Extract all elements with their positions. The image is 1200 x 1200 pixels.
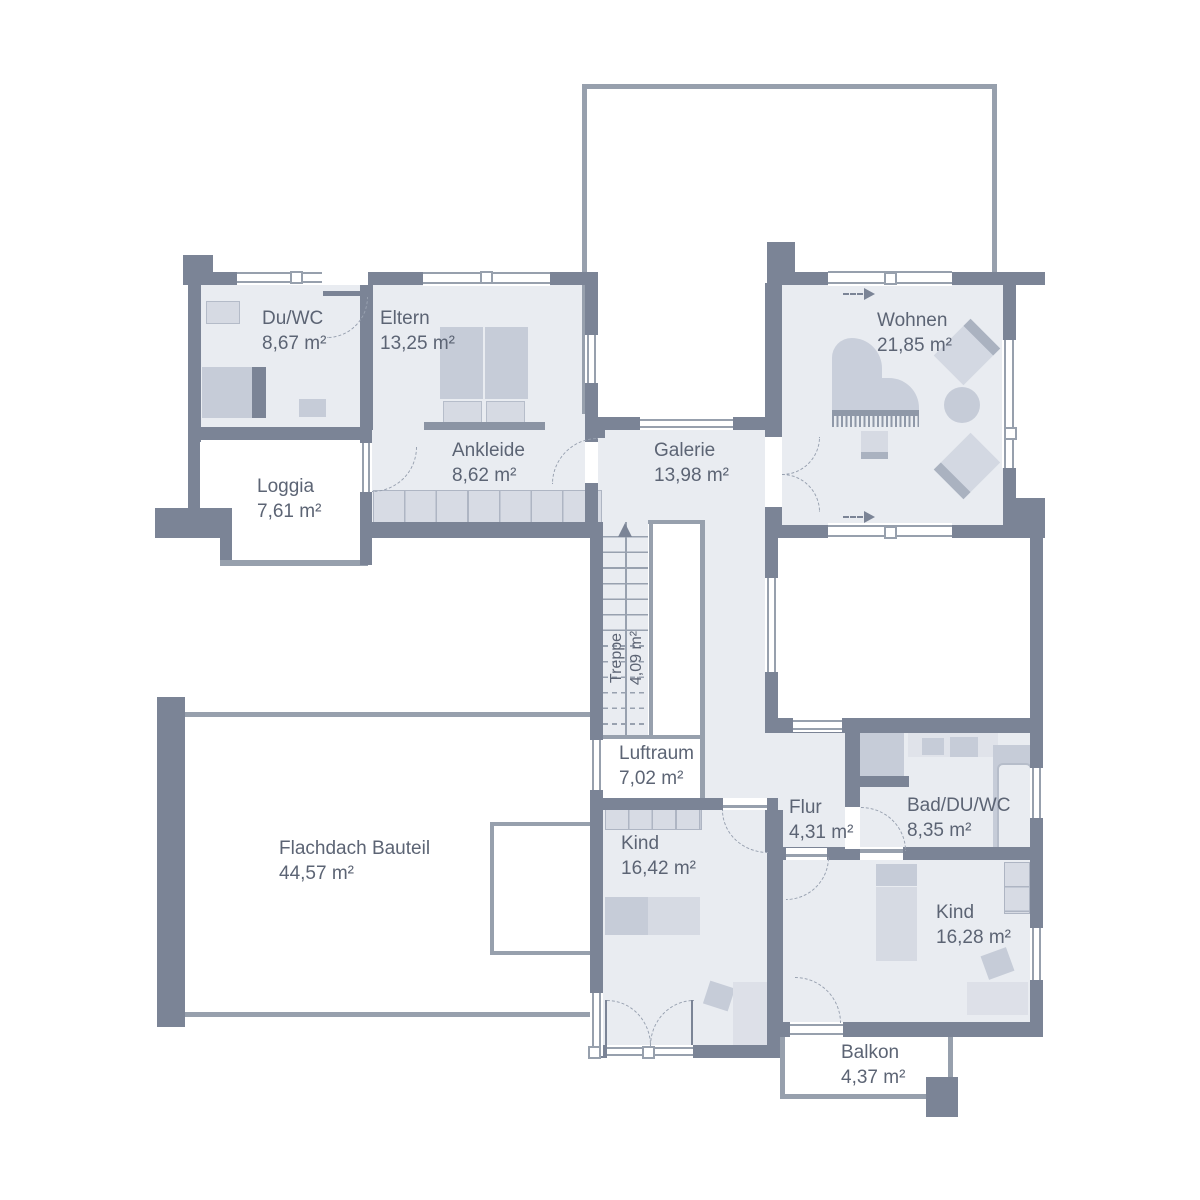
room-label-eltern: Eltern 13,25 m² — [380, 306, 455, 356]
sliding-door-arrow-icon — [843, 516, 863, 518]
window — [1002, 340, 1016, 468]
roof-edge — [185, 1012, 590, 1017]
wall — [1030, 538, 1043, 718]
room-name: Treppe — [607, 631, 627, 685]
room-area: 13,25 m² — [380, 331, 455, 356]
room-label-wohnen: Wohnen 21,85 m² — [877, 308, 952, 358]
balcony-parapet — [948, 1037, 953, 1079]
door-hinge — [588, 1046, 601, 1059]
sliding-door-arrow-icon — [843, 293, 863, 295]
wardrobe — [373, 490, 602, 524]
door-leaf — [323, 291, 368, 296]
rug — [967, 982, 1028, 1015]
room-area: 4,37 m² — [841, 1065, 905, 1090]
balcony-pillar — [926, 1077, 958, 1117]
wall — [903, 847, 1030, 860]
stairs-up-arrow-icon — [618, 523, 632, 537]
wall — [858, 776, 909, 787]
room-name: Kind — [621, 831, 696, 856]
void-border — [648, 520, 705, 524]
room-label-flur: Flur 4,31 m² — [789, 795, 853, 845]
bed-pillow-left — [443, 401, 482, 424]
grand-piano-body — [832, 378, 919, 412]
room-area: 44,57 m² — [279, 861, 430, 886]
wall — [157, 697, 185, 1027]
toilet — [950, 737, 978, 757]
room-name: Flachdach Bauteil — [279, 836, 430, 861]
room-area: 4,09 m² — [627, 631, 647, 685]
wall — [590, 522, 603, 1058]
roof-notch-outline — [490, 822, 595, 955]
bed-mattress-right — [485, 327, 528, 399]
wall — [252, 367, 266, 418]
bed-foot-bench — [424, 422, 545, 430]
piano-stool — [861, 431, 888, 459]
room-name: Wohnen — [877, 308, 952, 333]
floor-corridor — [705, 522, 765, 798]
room-label-luftraum: Luftraum 7,02 m² — [619, 741, 694, 791]
rug — [733, 982, 767, 1046]
void-border — [700, 520, 705, 798]
window — [640, 417, 733, 430]
door-leaf — [605, 1000, 607, 1045]
door-leaf — [765, 810, 767, 852]
window — [765, 578, 778, 672]
room-area: 8,67 m² — [262, 331, 326, 356]
room-name: Galerie — [654, 438, 729, 463]
room-name: Loggia — [257, 474, 321, 499]
staircase-divider — [625, 522, 627, 737]
wall — [585, 272, 598, 522]
shower — [858, 732, 904, 776]
room-label-galerie: Galerie 13,98 m² — [654, 438, 729, 488]
side-table — [944, 387, 980, 423]
window — [1030, 928, 1043, 980]
wall — [360, 522, 603, 538]
bed-pillow — [876, 864, 917, 886]
balcony-door — [790, 1022, 843, 1037]
window-mullion — [884, 272, 897, 285]
room-label-flachdach: Flachdach Bauteil 44,57 m² — [279, 836, 430, 886]
toilet — [299, 399, 326, 417]
room-area: 13,98 m² — [654, 463, 729, 488]
wall — [188, 440, 200, 510]
wall — [188, 272, 201, 442]
balcony-parapet — [780, 1094, 930, 1099]
room-label-kind-left: Kind 16,42 m² — [621, 831, 696, 881]
shower — [202, 367, 252, 418]
door-opening — [723, 798, 767, 810]
room-label-bad: Bad/DU/WC 8,35 m² — [907, 793, 1010, 843]
door-threshold — [723, 805, 767, 808]
loggia-parapet — [220, 560, 368, 566]
luftraum-void-upper — [650, 522, 703, 737]
sliding-door-arrow-icon — [864, 511, 875, 523]
room-name: Luftraum — [619, 741, 694, 766]
sliding-door-arrow-icon — [864, 288, 875, 300]
window — [237, 270, 323, 285]
room-name: Balkon — [841, 1040, 905, 1065]
roof-edge — [185, 712, 590, 717]
door-leaf — [691, 1000, 693, 1045]
room-name: Eltern — [380, 306, 455, 331]
wall — [155, 508, 232, 538]
loggia-door-window — [360, 443, 372, 492]
window — [590, 740, 603, 790]
room-label-treppe: Treppe 4,09 m² — [607, 631, 647, 685]
door-opening — [765, 437, 782, 507]
room-label-duwc: Du/WC 8,67 m² — [262, 306, 326, 356]
door-hinge — [642, 1046, 655, 1059]
roof-outline-right — [992, 84, 997, 274]
room-area: 7,61 m² — [257, 499, 321, 524]
washbasin — [922, 738, 944, 755]
room-name: Flur — [789, 795, 853, 820]
room-name: Kind — [936, 900, 1011, 925]
room-label-balkon: Balkon 4,37 m² — [841, 1040, 905, 1090]
room-name: Bad/DU/WC — [907, 793, 1010, 818]
bed-pillow — [605, 897, 648, 935]
wall — [593, 428, 605, 438]
room-area: 7,02 m² — [619, 766, 694, 791]
window — [585, 335, 598, 383]
room-name: Ankleide — [452, 438, 525, 463]
window-mullion — [480, 271, 493, 284]
room-area: 4,31 m² — [789, 820, 853, 845]
piano-keys — [832, 416, 919, 427]
bed-mattress — [648, 897, 700, 935]
wall — [765, 283, 782, 437]
wall — [767, 810, 783, 1045]
roof-outline-top — [582, 84, 997, 89]
wall — [1030, 718, 1043, 1037]
bed-mattress — [876, 887, 917, 961]
room-area: 16,42 m² — [621, 856, 696, 881]
room-label-loggia: Loggia 7,61 m² — [257, 474, 321, 524]
window — [1030, 768, 1043, 818]
room-area: 16,28 m² — [936, 925, 1011, 950]
room-area: 8,62 m² — [452, 463, 525, 488]
window-mullion — [290, 271, 303, 284]
floor-plan: Du/WC 8,67 m² Eltern 13,25 m² Loggia 7,6… — [0, 0, 1200, 1200]
room-name: Du/WC — [262, 306, 326, 331]
room-area: 21,85 m² — [877, 333, 952, 358]
window-mullion — [1004, 427, 1017, 440]
bed-pillow-right — [486, 401, 525, 424]
room-area: 8,35 m² — [907, 818, 1010, 843]
window — [793, 718, 842, 732]
balcony-parapet — [780, 1037, 785, 1096]
void-border — [649, 522, 653, 737]
window-mullion — [884, 526, 897, 539]
door-opening — [322, 272, 368, 285]
wall — [188, 427, 372, 440]
void-border — [603, 735, 704, 739]
room-label-ankleide: Ankleide 8,62 m² — [452, 438, 525, 488]
washbasin — [206, 301, 240, 324]
room-label-kind-right: Kind 16,28 m² — [936, 900, 1011, 950]
